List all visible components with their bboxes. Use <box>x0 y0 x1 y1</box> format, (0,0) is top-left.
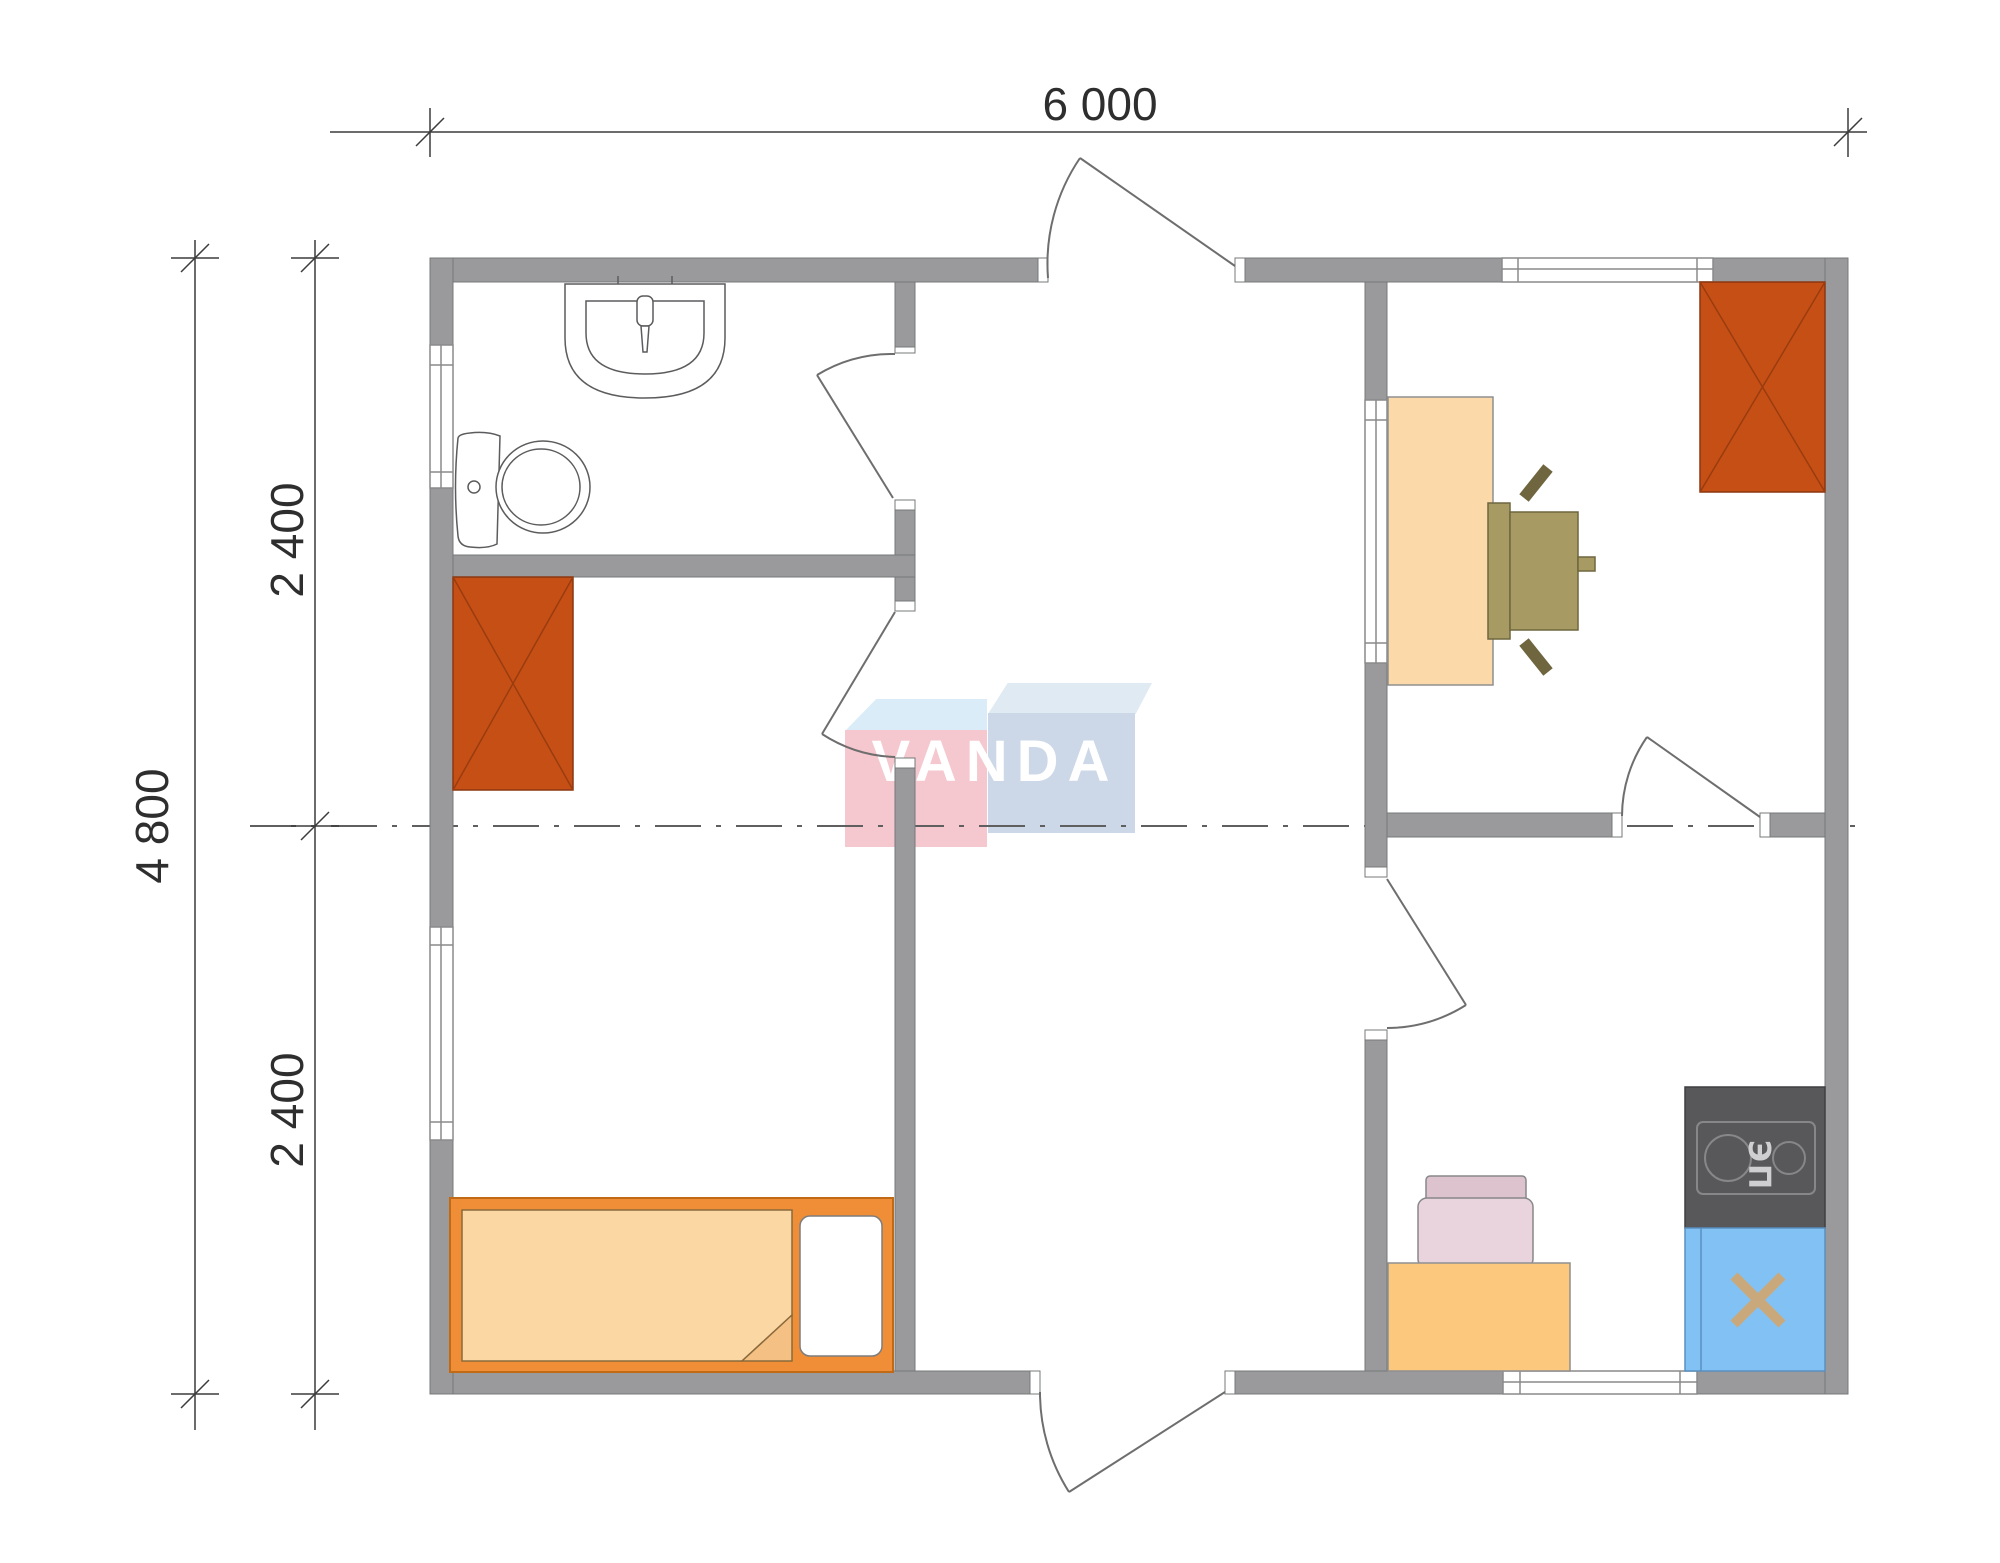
bed-icon <box>450 1198 893 1372</box>
kitchen-chair-icon <box>1418 1176 1533 1268</box>
window-icon <box>430 927 453 1140</box>
window-icon <box>1503 1371 1697 1394</box>
door-swing-icon <box>1387 879 1466 1028</box>
floor-plan: VANDA <box>0 0 2000 1563</box>
window-icon <box>1502 258 1713 282</box>
door-swing-icon <box>1040 1392 1225 1492</box>
door-swing-icon <box>817 354 895 498</box>
kitchen-table-icon <box>1388 1263 1570 1371</box>
kitchen-sink-icon <box>1685 1228 1825 1371</box>
desk-icon <box>1388 397 1493 685</box>
window-icon <box>430 345 453 488</box>
pillow-icon <box>800 1216 882 1356</box>
stove-icon <box>1685 1087 1825 1228</box>
dimension-lines <box>171 108 1867 1430</box>
door-swing-icon <box>1047 158 1235 278</box>
door-swing-icon <box>822 612 895 757</box>
door-swing-icon <box>1622 737 1760 817</box>
wardrobe-icon <box>1700 282 1825 492</box>
window-icon <box>1365 400 1387 663</box>
wardrobe-icon <box>453 577 573 790</box>
plan-drawing <box>0 0 2000 1563</box>
sink-icon <box>565 276 725 398</box>
office-chair-icon <box>1488 468 1595 672</box>
toilet-icon <box>456 432 591 547</box>
